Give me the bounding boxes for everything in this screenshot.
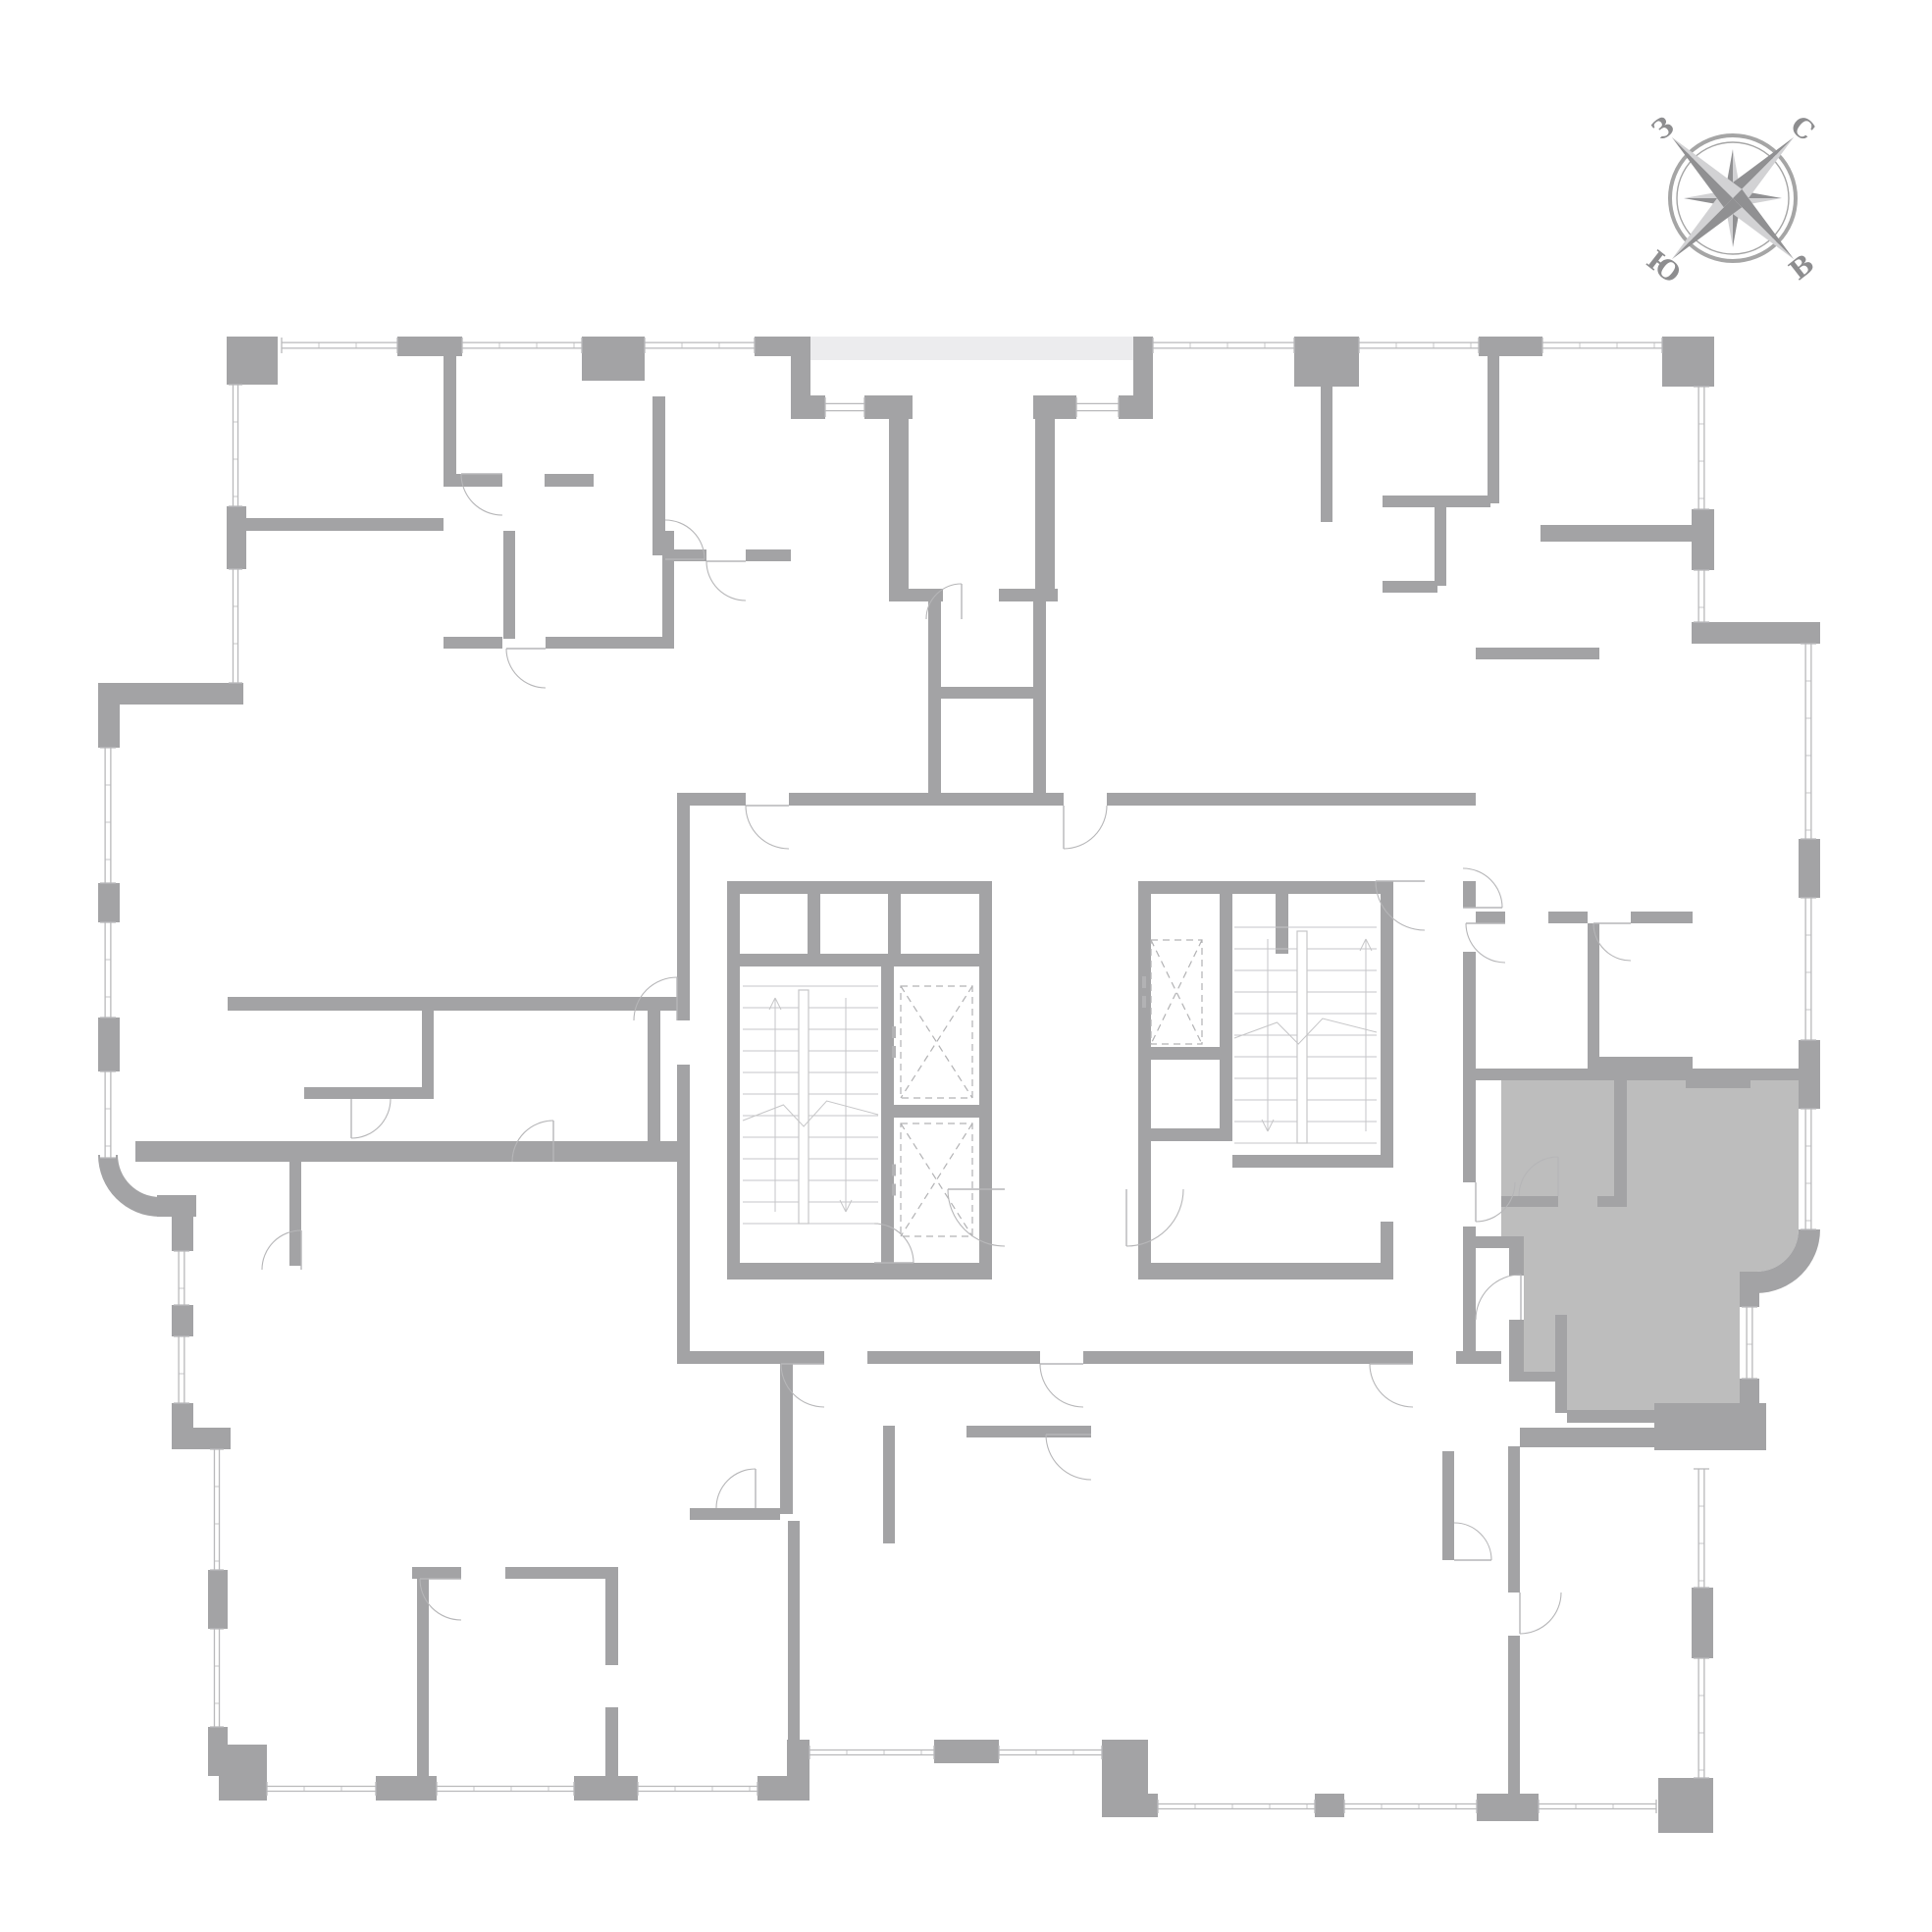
window — [1539, 1800, 1656, 1813]
wall — [172, 1428, 231, 1449]
wall — [98, 1018, 120, 1071]
wall — [1321, 385, 1332, 522]
wall — [546, 637, 674, 649]
window — [462, 338, 582, 353]
wall — [1107, 793, 1476, 806]
wall — [1692, 1588, 1713, 1658]
wall — [791, 337, 810, 419]
wall — [894, 1105, 979, 1118]
wall — [505, 1567, 616, 1579]
wall — [653, 396, 665, 555]
wall — [417, 1579, 429, 1780]
wall — [1456, 1351, 1501, 1364]
wall — [1435, 507, 1446, 586]
wall — [677, 1065, 690, 1364]
wall — [1692, 622, 1820, 644]
adjacent-section-slab — [810, 337, 1133, 360]
wall — [780, 1364, 793, 1514]
wall — [397, 337, 462, 356]
wall — [1476, 912, 1505, 923]
wall — [746, 549, 791, 561]
window — [1153, 338, 1294, 353]
wall — [243, 518, 444, 531]
wall — [605, 1707, 618, 1794]
wall — [289, 1162, 301, 1266]
wall — [789, 793, 1064, 806]
wall — [157, 1195, 196, 1217]
wall — [1540, 525, 1692, 542]
wall — [867, 1351, 1040, 1364]
wall — [1381, 894, 1393, 1168]
wall — [740, 954, 979, 966]
window — [1359, 338, 1479, 353]
wall — [444, 474, 502, 487]
wall — [1799, 839, 1820, 898]
window — [267, 1782, 376, 1796]
wall — [582, 337, 645, 381]
wall — [727, 1263, 992, 1279]
wall — [1631, 912, 1693, 923]
wall — [1442, 1451, 1454, 1560]
wall — [1548, 912, 1588, 923]
wall — [1138, 1141, 1151, 1279]
wall — [208, 1570, 228, 1629]
wall — [1463, 1227, 1476, 1364]
wall — [1463, 881, 1476, 908]
wall — [1588, 1057, 1693, 1069]
wall — [934, 1740, 999, 1763]
wall — [941, 687, 1033, 699]
window — [1801, 898, 1816, 1040]
wall — [1588, 923, 1599, 1069]
window — [210, 1449, 224, 1570]
wall — [1119, 395, 1133, 419]
wall — [1476, 1069, 1820, 1080]
wall — [1315, 1794, 1344, 1817]
wall — [999, 589, 1058, 601]
wall — [1692, 509, 1714, 570]
wall — [881, 966, 894, 1263]
wall — [227, 506, 246, 569]
wall — [1035, 419, 1055, 601]
window — [100, 1071, 116, 1158]
wall — [605, 1567, 618, 1665]
wall — [889, 419, 909, 601]
wall — [1138, 881, 1393, 894]
wall — [1567, 1410, 1740, 1423]
wall — [1232, 1155, 1381, 1168]
wall — [228, 997, 679, 1011]
selected-apartment-wall — [1614, 1080, 1627, 1206]
floor-plan-page: СВЮЗ — [0, 0, 1932, 1932]
wall — [1509, 1248, 1524, 1276]
wall — [1138, 1263, 1393, 1279]
window — [1742, 1307, 1757, 1379]
wall — [1138, 894, 1151, 1141]
wall — [1658, 1778, 1713, 1833]
wall — [172, 1305, 193, 1336]
wall — [172, 1217, 193, 1251]
window — [645, 338, 755, 353]
wall — [1383, 581, 1437, 593]
wall — [135, 1141, 683, 1162]
wall — [757, 1776, 787, 1801]
wall — [788, 1521, 800, 1751]
wall — [1133, 337, 1153, 419]
window — [210, 1629, 224, 1727]
window — [999, 1746, 1102, 1759]
window — [1542, 338, 1662, 353]
wall — [677, 793, 746, 806]
window — [1801, 1109, 1816, 1229]
window — [1801, 644, 1816, 839]
wall — [888, 881, 901, 954]
wall — [444, 356, 456, 474]
window — [1158, 1800, 1315, 1813]
selected-apartment-wall — [1686, 1080, 1750, 1088]
wall — [883, 1426, 895, 1543]
wall — [1555, 1315, 1567, 1413]
window — [1694, 570, 1709, 622]
wall — [1520, 1428, 1692, 1447]
wall — [677, 806, 690, 1020]
wall — [979, 894, 992, 1279]
window — [638, 1782, 757, 1796]
window — [174, 1336, 189, 1403]
wall — [1463, 952, 1476, 1182]
wall — [422, 1011, 434, 1099]
wall — [1033, 601, 1046, 793]
wall — [1294, 337, 1359, 387]
wall — [98, 705, 120, 748]
wall — [1083, 1351, 1413, 1364]
wall — [98, 683, 243, 705]
wall — [727, 894, 740, 1279]
selected-apartment-wall — [1597, 1196, 1627, 1207]
wall — [864, 395, 913, 419]
wall — [444, 637, 502, 649]
wall — [1509, 1372, 1557, 1382]
window — [1694, 387, 1709, 509]
window — [1344, 1800, 1477, 1813]
wall — [412, 1567, 461, 1579]
wall — [727, 881, 992, 894]
window — [809, 1746, 934, 1759]
wall — [889, 589, 943, 601]
wall — [1477, 1794, 1539, 1821]
window — [100, 922, 116, 1018]
window — [229, 569, 242, 683]
wall — [98, 883, 120, 922]
wall — [1220, 894, 1232, 1141]
wall — [1476, 648, 1599, 659]
wall — [1383, 496, 1490, 507]
window — [825, 397, 864, 417]
wall — [227, 337, 278, 385]
wall — [808, 881, 820, 954]
window — [100, 748, 116, 883]
wall — [1508, 1446, 1520, 1593]
wall — [1488, 356, 1499, 503]
wall — [304, 1087, 434, 1099]
wall — [690, 1351, 824, 1364]
wall — [1476, 1236, 1524, 1248]
wall — [648, 997, 660, 1141]
wall — [545, 474, 594, 487]
window — [437, 1782, 574, 1796]
wall — [1508, 1636, 1520, 1810]
window — [282, 338, 397, 353]
wall — [1033, 395, 1076, 419]
window — [1694, 1469, 1709, 1588]
window — [1076, 397, 1119, 417]
wall — [208, 1727, 228, 1776]
window — [229, 385, 242, 506]
wall — [1276, 881, 1288, 954]
window — [1694, 1658, 1709, 1778]
floor-plan-svg: СВЮЗ — [0, 0, 1932, 1932]
wall — [1509, 1320, 1524, 1372]
wall — [1479, 337, 1542, 356]
window — [174, 1251, 189, 1305]
wall — [1662, 337, 1714, 387]
wall — [966, 1426, 1091, 1437]
wall — [810, 395, 825, 419]
wall — [503, 531, 515, 639]
wall — [690, 1508, 780, 1520]
wall — [928, 601, 941, 793]
wall — [1136, 1794, 1158, 1817]
